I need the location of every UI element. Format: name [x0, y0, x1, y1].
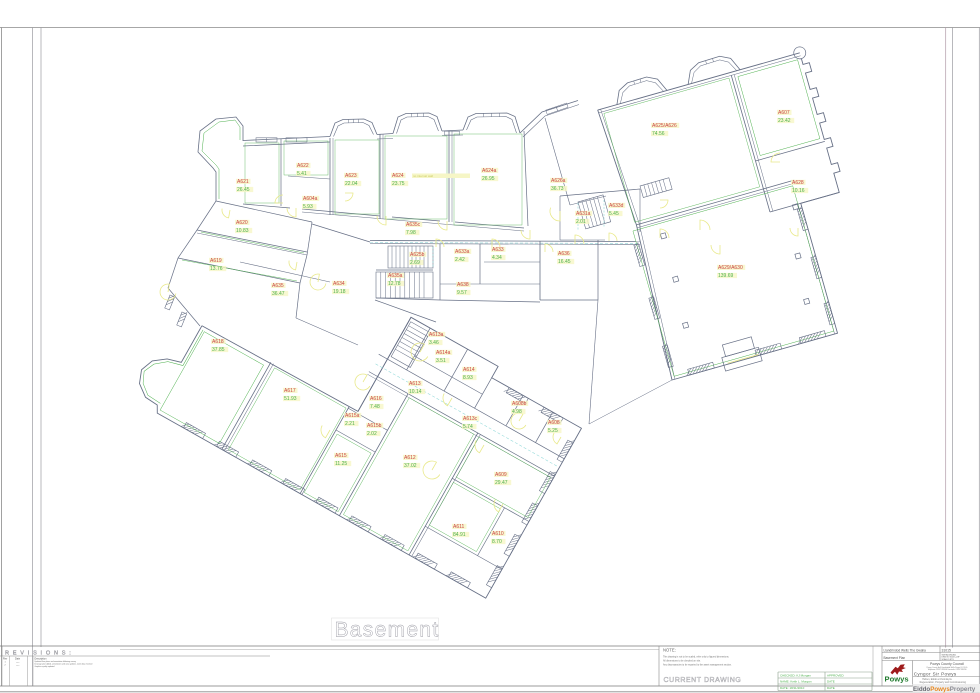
svg-text:A623: A623 [345, 173, 357, 179]
svg-text:84.91: 84.91 [453, 532, 466, 538]
svg-text:A633d: A633d [609, 203, 624, 209]
svg-text:DATE: DATE [827, 686, 835, 690]
svg-text:Llandrindod Wells The Gwalia: Llandrindod Wells The Gwalia [884, 649, 926, 653]
svg-text:2.69: 2.69 [410, 260, 420, 266]
svg-text:A629/A630: A629/A630 [718, 265, 743, 271]
svg-text:A620: A620 [236, 220, 248, 226]
svg-text:23.75: 23.75 [392, 181, 405, 187]
svg-text:A616: A616 [370, 396, 382, 402]
svg-text:DATE: DATE [827, 680, 835, 684]
svg-text:A610: A610 [492, 531, 504, 537]
svg-text:Any discrepancies to be report: Any discrepancies to be reported to the … [663, 664, 732, 667]
svg-text:A635c: A635c [406, 222, 421, 228]
svg-text:139.69: 139.69 [718, 273, 734, 279]
svg-text:A622: A622 [297, 163, 309, 169]
svg-text:A621: A621 [237, 179, 249, 185]
svg-text:APPROVED: APPROVED [827, 674, 845, 678]
svg-text:A617: A617 [284, 388, 296, 394]
svg-text:A636: A636 [558, 251, 570, 257]
svg-text:CHECKED: KJ Morgan: CHECKED: KJ Morgan [780, 674, 811, 678]
svg-text:EiddoPowysProperty: EiddoPowysProperty [913, 686, 976, 693]
svg-text:37.85: 37.85 [212, 347, 225, 353]
svg-text:4.98: 4.98 [512, 409, 522, 415]
svg-text:A633a: A633a [455, 249, 470, 255]
svg-text:A635a: A635a [388, 273, 403, 279]
svg-text:Date: Date [15, 657, 21, 660]
svg-text:A614: A614 [463, 367, 475, 373]
svg-text:22.04: 22.04 [345, 181, 358, 187]
svg-text:A608b: A608b [512, 401, 527, 407]
svg-text:3.46: 3.46 [429, 340, 439, 346]
svg-text:4.34: 4.34 [492, 255, 502, 261]
svg-text:2.01: 2.01 [576, 219, 586, 225]
svg-text:A615b: A615b [367, 423, 382, 429]
svg-text:Basement: Basement [335, 618, 440, 641]
svg-text:7.48: 7.48 [370, 404, 380, 410]
svg-text:A613: A613 [409, 381, 421, 387]
svg-text:Powys: Powys [885, 675, 909, 684]
svg-text:2.02: 2.02 [367, 431, 377, 437]
svg-text:Basement Plan: Basement Plan [884, 656, 906, 660]
svg-text:8.93: 8.93 [463, 375, 473, 381]
svg-text:Regeneration, Property and Com: Regeneration, Property and Commissioning [920, 681, 967, 684]
svg-text:5.25: 5.25 [548, 428, 558, 434]
svg-text:51.93: 51.93 [284, 396, 297, 402]
svg-text:A607: A607 [778, 110, 790, 116]
svg-text:10.16: 10.16 [792, 188, 805, 194]
svg-text:29.47: 29.47 [495, 480, 508, 486]
svg-text:Graphics quality updated: Graphics quality updated [35, 665, 55, 668]
svg-text:All dimensions to be checked o: All dimensions to be checked on site. [663, 660, 701, 663]
svg-text:CURRENT DRAWING: CURRENT DRAWING [664, 677, 742, 684]
svg-text:A626a: A626a [551, 178, 566, 184]
svg-text:A625/A626: A625/A626 [652, 123, 677, 129]
svg-text:9.57: 9.57 [457, 290, 467, 296]
svg-text:SCALE 1:NTS: SCALE 1:NTS [942, 658, 955, 661]
svg-text:A615a: A615a [345, 413, 360, 419]
svg-text:A638: A638 [457, 282, 469, 288]
svg-text:A613c: A613c [463, 416, 478, 422]
svg-text:11.25: 11.25 [335, 461, 347, 467]
svg-text:R E V I S I O N S :: R E V I S I O N S : [5, 650, 72, 656]
svg-text:A624: A624 [392, 173, 404, 179]
svg-text:36.73: 36.73 [551, 186, 564, 192]
svg-text:A615: A615 [335, 453, 347, 459]
svg-text:A628: A628 [792, 180, 804, 186]
svg-text:5.41: 5.41 [297, 171, 307, 177]
svg-text:NAME: Keith L. Morgan: NAME: Keith L. Morgan [780, 680, 812, 684]
svg-text:26.45: 26.45 [237, 187, 250, 193]
svg-text:5.45: 5.45 [609, 211, 619, 217]
svg-text:5.93: 5.93 [303, 204, 313, 210]
svg-text:74.56: 74.56 [652, 131, 665, 137]
svg-text:31015: 31015 [942, 649, 952, 653]
svg-text:-----: ----- [16, 664, 20, 666]
svg-text:2.21: 2.21 [345, 421, 355, 427]
svg-text:A624a: A624a [482, 168, 497, 174]
svg-text:A631a: A631a [576, 211, 591, 217]
svg-text:A613a: A613a [429, 332, 444, 338]
svg-text:A618: A618 [212, 339, 224, 345]
svg-text:37.02: 37.02 [404, 463, 417, 469]
svg-text:This drawing is not to be scal: This drawing is not to be scaled, refer … [663, 656, 729, 659]
svg-text:Description: Description [35, 657, 48, 660]
svg-text:A625b: A625b [410, 252, 425, 258]
svg-text:A611: A611 [453, 524, 465, 530]
svg-text:DATE: 18/11/2010: DATE: 18/11/2010 [780, 686, 805, 690]
svg-text:16.45: 16.45 [558, 259, 571, 265]
svg-text:NOTE:: NOTE: [663, 648, 676, 653]
svg-text:23.42: 23.42 [778, 118, 791, 124]
svg-text:A633: A633 [492, 247, 504, 253]
svg-text:10.14: 10.14 [409, 389, 422, 395]
svg-text:5.74: 5.74 [463, 424, 473, 430]
svg-text:3.51: 3.51 [436, 358, 446, 364]
svg-text:13.76: 13.76 [210, 266, 223, 272]
svg-text:A634: A634 [333, 281, 345, 287]
svg-text:no internal wall: no internal wall [413, 174, 433, 178]
svg-text:Powys County Council: Powys County Council [930, 662, 964, 666]
svg-text:A608: A608 [548, 420, 560, 426]
svg-text:26.95: 26.95 [482, 176, 495, 182]
svg-text:A612: A612 [404, 455, 416, 461]
svg-text:8.70: 8.70 [492, 539, 502, 545]
svg-text:2.42: 2.42 [455, 257, 465, 263]
svg-text:7.98: 7.98 [406, 230, 416, 236]
svg-text:19.18: 19.18 [333, 289, 346, 295]
svg-text:12.78: 12.78 [388, 281, 401, 287]
svg-text:A604a: A604a [303, 196, 318, 202]
svg-text:A609: A609 [495, 472, 507, 478]
svg-text:A635: A635 [272, 283, 284, 289]
svg-text:A619: A619 [210, 258, 222, 264]
svg-text:-----: ----- [16, 661, 20, 663]
svg-text:36.47: 36.47 [272, 291, 285, 297]
svg-text:10.83: 10.83 [236, 228, 249, 234]
svg-text:Cyngor Sir Powys: Cyngor Sir Powys [914, 671, 957, 676]
svg-text:A614a: A614a [436, 350, 451, 356]
